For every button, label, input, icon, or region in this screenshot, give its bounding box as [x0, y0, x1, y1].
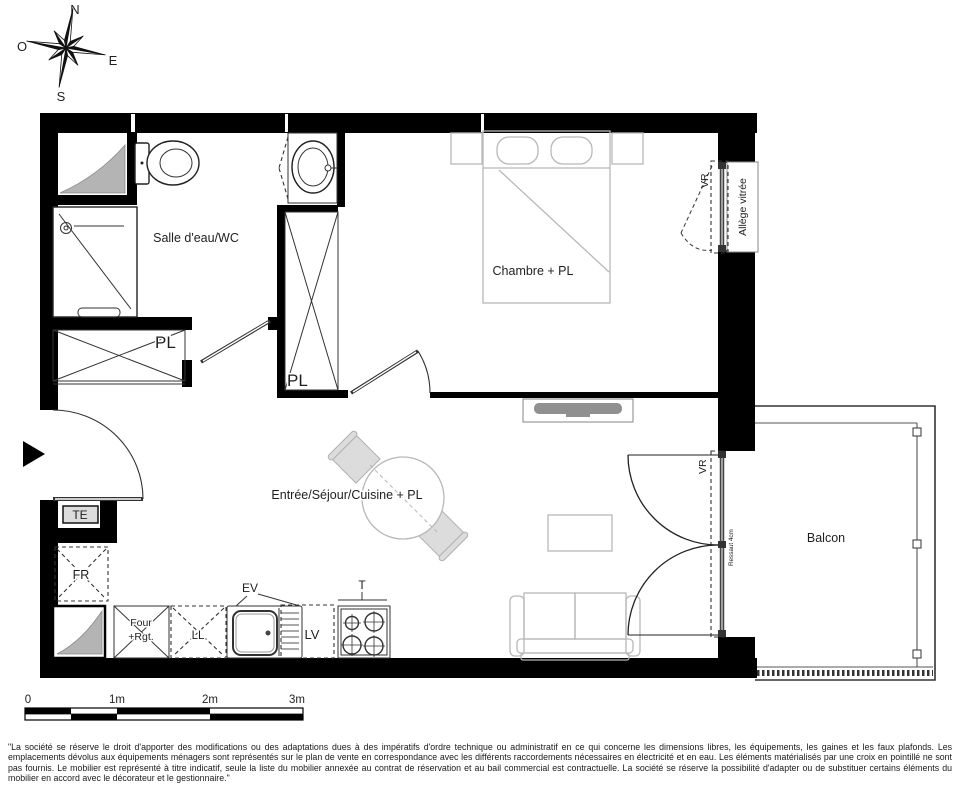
- fridge-label: FR: [73, 568, 90, 582]
- living-label: Entrée/Séjour/Cuisine + PL: [271, 488, 422, 502]
- bathroom-door: [201, 321, 270, 362]
- compass-west-label: O: [17, 39, 27, 54]
- floor-plan-drawing: N O E S: [0, 0, 955, 800]
- living-room: Entrée/Séjour/Cuisine + PL: [271, 430, 640, 660]
- oven-label-line2: +Rgt.: [128, 631, 153, 643]
- vr-window-label: VR: [699, 173, 711, 188]
- electrical-panel-label: TE: [72, 508, 87, 522]
- ressaut-label: Ressaut 4cm: [728, 529, 735, 566]
- toilet-icon: [135, 141, 199, 185]
- floor-plan-page: N O E S: [0, 0, 955, 800]
- scale-tick-1m: 1m: [109, 694, 125, 706]
- hob-icon: T: [338, 578, 390, 658]
- sink-unit-icon: EV: [227, 581, 302, 658]
- duct-shaft-bathroom: [60, 145, 125, 193]
- duct-shaft-kitchen: [53, 606, 105, 658]
- compass-south-label: S: [57, 89, 66, 104]
- washing-machine-icon: LL: [171, 606, 226, 658]
- nightstand-left: [451, 133, 482, 164]
- sink-label: EV: [242, 581, 258, 595]
- bathroom-closet-label: PL: [155, 333, 176, 352]
- washing-machine-label: LL: [192, 630, 205, 642]
- vr-door-label: VR: [697, 459, 709, 474]
- compass-east-label: E: [109, 53, 118, 68]
- fridge-icon: FR: [55, 547, 108, 601]
- compass-north-label: N: [70, 2, 79, 17]
- scale-tick-2m: 2m: [202, 694, 218, 706]
- bathroom-closet: PL: [53, 330, 185, 384]
- bedroom-label: Chambre + PL: [493, 264, 574, 278]
- bathroom-label: Salle d'eau/WC: [153, 231, 239, 245]
- electrical-panel: TE: [63, 506, 98, 523]
- legal-disclaimer: "La société se réserve le droit d'apport…: [8, 742, 952, 783]
- dishwasher-label: LV: [305, 627, 320, 642]
- bathroom: Salle d'eau/WC PL: [53, 133, 337, 384]
- coffee-table-icon: [548, 515, 612, 551]
- entrance-arrow-icon: [23, 441, 45, 467]
- bedroom: Chambre + PL Allège vitrée VR: [351, 131, 758, 422]
- entrance: [23, 410, 143, 499]
- bedroom-window: Allège vitrée VR: [681, 161, 758, 253]
- oven-label-line1: Four: [130, 617, 152, 629]
- hall-closet-label: PL: [287, 371, 308, 390]
- walls: [40, 113, 757, 678]
- scale-tick-3m: 3m: [289, 694, 305, 706]
- entrance-door: [53, 410, 143, 499]
- sofa-icon: [510, 593, 640, 660]
- hob-label: T: [358, 578, 366, 592]
- scale-bar: 0 1m 2m 3m: [25, 694, 305, 720]
- nightstand-right: [612, 133, 643, 164]
- washbasin-icon: [279, 133, 337, 203]
- balcony: Balcon: [755, 406, 935, 680]
- bedroom-door: [351, 351, 430, 393]
- balcony-label: Balcon: [807, 531, 845, 545]
- shower-icon: [53, 207, 137, 317]
- oven-unit-icon: Four +Rgt.: [114, 606, 169, 658]
- compass-rose-icon: N O E S: [17, 2, 118, 104]
- scale-tick-0: 0: [25, 694, 31, 706]
- hall-closet: PL: [285, 212, 338, 390]
- tv-unit-icon: [523, 399, 633, 422]
- french-door: VR Ressaut 4cm: [628, 451, 735, 637]
- allege-vitree-label: Allège vitrée: [737, 178, 749, 236]
